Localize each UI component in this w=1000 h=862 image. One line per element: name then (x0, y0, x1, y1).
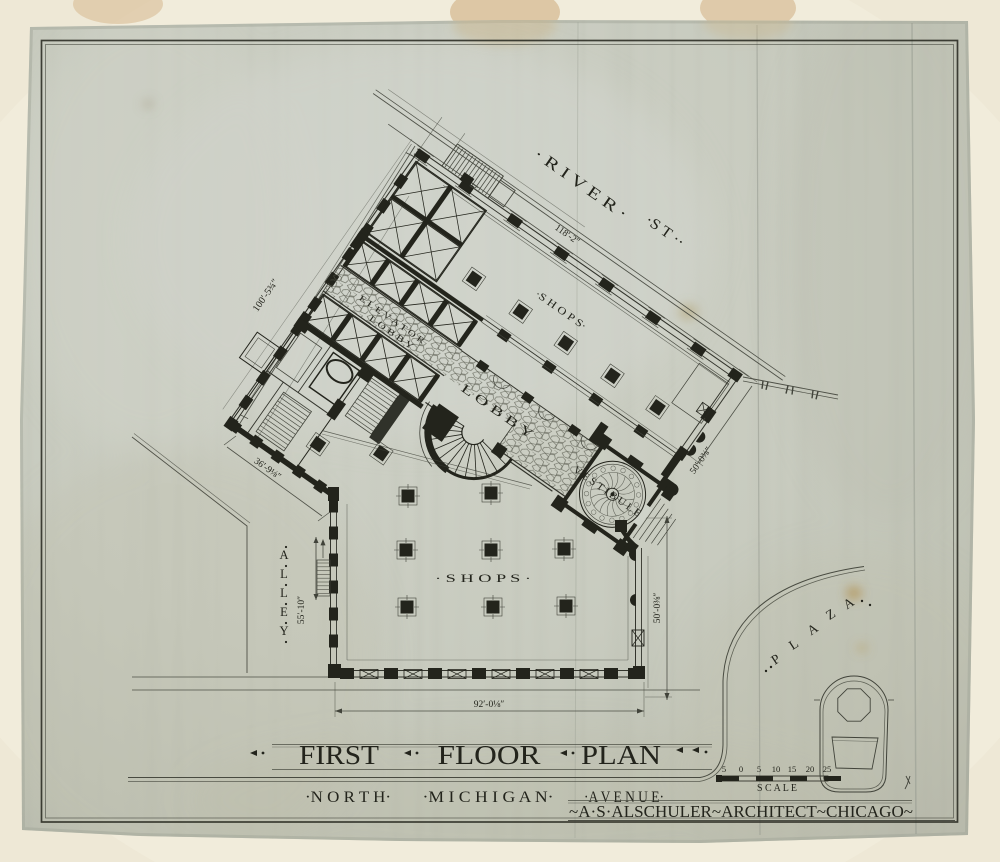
svg-text:92′-0⅛″: 92′-0⅛″ (474, 700, 505, 710)
svg-text:PLAN: PLAN (581, 740, 661, 770)
svg-text:15: 15 (788, 764, 797, 774)
svg-text:25: 25 (823, 764, 832, 774)
svg-text:20: 20 (806, 764, 815, 774)
svg-text:5: 5 (757, 764, 761, 774)
svg-text:FIRST: FIRST (299, 740, 380, 770)
svg-text:· S H O P S ·: · S H O P S · (435, 571, 531, 585)
svg-text:Y: Y (279, 624, 288, 638)
svg-text:~A·S·ALSCHULER~ARCHITECT~CHICA: ~A·S·ALSCHULER~ARCHITECT~CHICAGO~ (569, 802, 913, 821)
svg-text:S C A L E: S C A L E (757, 783, 797, 794)
svg-text:E: E (280, 605, 288, 619)
svg-text:5: 5 (722, 764, 726, 774)
svg-text:A: A (279, 548, 288, 562)
svg-text:55′-10″: 55′-10″ (297, 596, 307, 624)
svg-text:10: 10 (772, 764, 781, 774)
svg-text:·M I C H I G A N·: ·M I C H I G A N· (423, 789, 554, 806)
svg-text:0: 0 (739, 764, 743, 774)
svg-text:L: L (280, 586, 288, 600)
svg-text:L: L (280, 567, 288, 581)
svg-text:FLOOR: FLOOR (438, 740, 541, 770)
svg-text:50′-0⅜″: 50′-0⅜″ (653, 593, 663, 624)
svg-text:·N O R T H·: ·N O R T H· (305, 789, 391, 806)
